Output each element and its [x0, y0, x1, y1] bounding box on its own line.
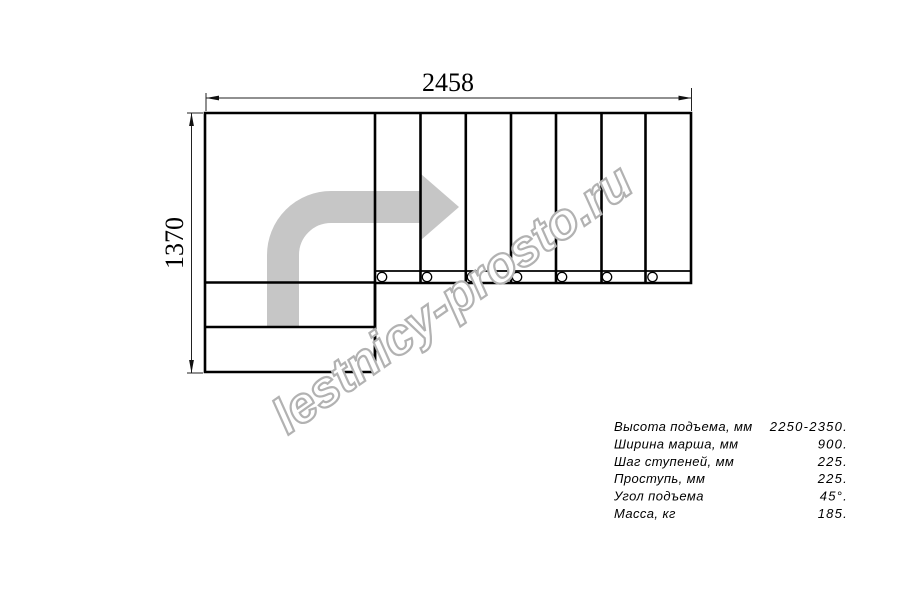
svg-text:Угол подъема: Угол подъема: [613, 489, 704, 504]
svg-text:Шаг ступеней, мм: Шаг ступеней, мм: [614, 454, 734, 469]
svg-text:2458: 2458: [422, 68, 474, 97]
svg-text:185.: 185.: [818, 506, 848, 521]
svg-text:Масса, кг: Масса, кг: [614, 506, 676, 521]
svg-text:225.: 225.: [817, 454, 848, 469]
svg-text:900.: 900.: [818, 436, 848, 451]
svg-text:45°.: 45°.: [820, 489, 848, 504]
svg-text:225.: 225.: [817, 471, 848, 486]
svg-text:Проступь, мм: Проступь, мм: [614, 471, 705, 486]
svg-text:2250-2350.: 2250-2350.: [769, 419, 848, 434]
svg-text:Ширина марша, мм: Ширина марша, мм: [614, 436, 739, 451]
svg-text:1370: 1370: [160, 217, 189, 269]
svg-text:Высота подъема, мм: Высота подъема, мм: [614, 419, 753, 434]
